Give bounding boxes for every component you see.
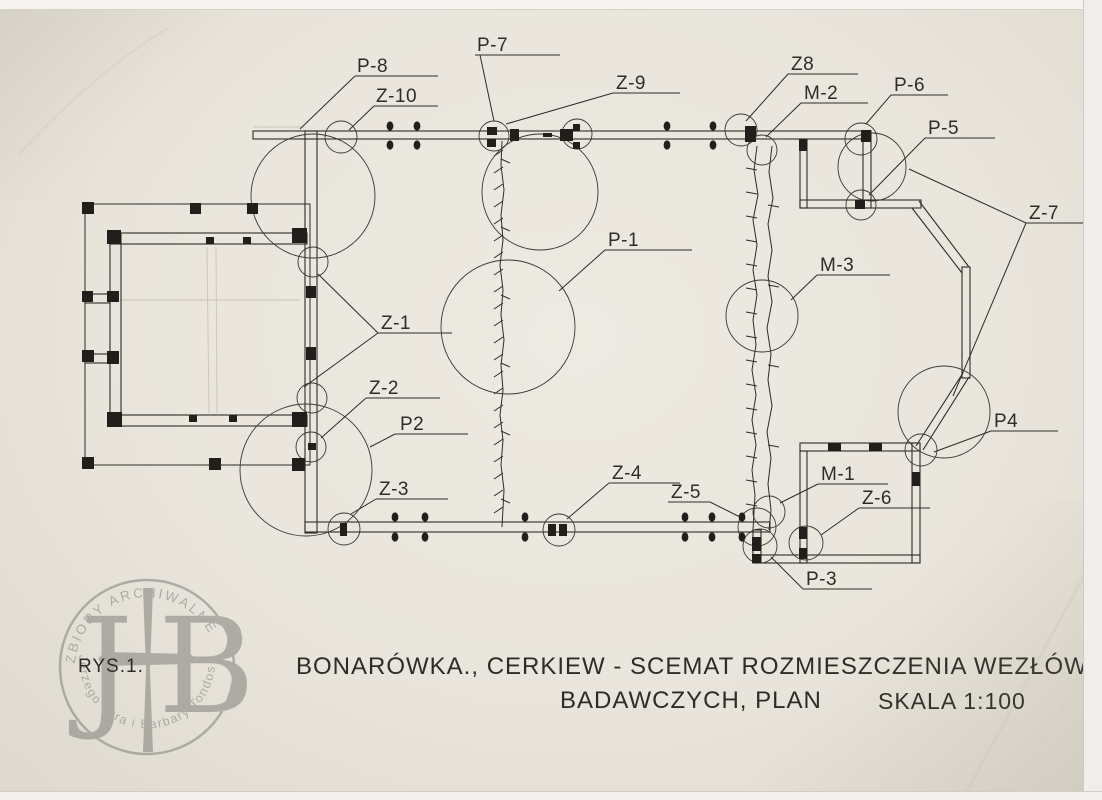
m3-wall-ticks [746,168,779,506]
node-label-z10: Z-10 [376,86,417,107]
node-label-z9: Z-9 [616,73,646,94]
node-label-p4: P4 [994,411,1018,432]
node-label-z7: Z-7 [1029,203,1059,224]
sketchy-wall-m3 [746,146,779,530]
scan-shadow-bottom-right [762,500,1102,800]
node-label-p7: P-7 [477,35,508,56]
node-label-z8: Z8 [791,54,814,75]
scan-edge-bottom [0,791,1102,800]
node-label-z1: Z-1 [381,313,411,334]
node-label-m2: M-2 [804,83,838,104]
survey-circle-large-p7 [482,134,598,250]
node-label-z5: Z-5 [671,482,701,503]
survey-circle-p1 [441,260,575,394]
scan-shadow-top-left [0,0,260,200]
survey-circle-z10 [325,121,357,153]
interior-partition-sketchy [494,141,510,527]
scanned-drawing-page: P-8 Z-10 P-7 Z-9 Z8 M-2 P-6 P-5 Z-7 P-1 … [0,0,1102,800]
node-label-p8: P-8 [357,56,388,77]
survey-circle-large-p6p5 [838,133,906,201]
scan-edge-top [0,0,1102,10]
stamp-monogram-b: B [158,590,255,744]
survey-circle-z1-lower [297,383,327,413]
survey-circle-large-nw [251,134,375,258]
node-label-z2: Z-2 [369,378,399,399]
scan-edge-right [1083,0,1102,800]
survey-circle-z1-upper [298,247,328,277]
figure-number: RYS.1. [78,656,144,677]
node-label-p6: P-6 [894,75,925,96]
survey-circle-m3 [726,280,798,352]
node-label-z4: Z-4 [612,463,642,484]
node-label-p1: P-1 [608,230,639,251]
node-label-m1: M-1 [821,464,855,485]
node-label-z3: Z-3 [379,479,409,500]
node-label-m3: M-3 [820,255,854,276]
node-label-p2: P2 [400,414,424,435]
node-label-p5: P-5 [928,118,959,139]
